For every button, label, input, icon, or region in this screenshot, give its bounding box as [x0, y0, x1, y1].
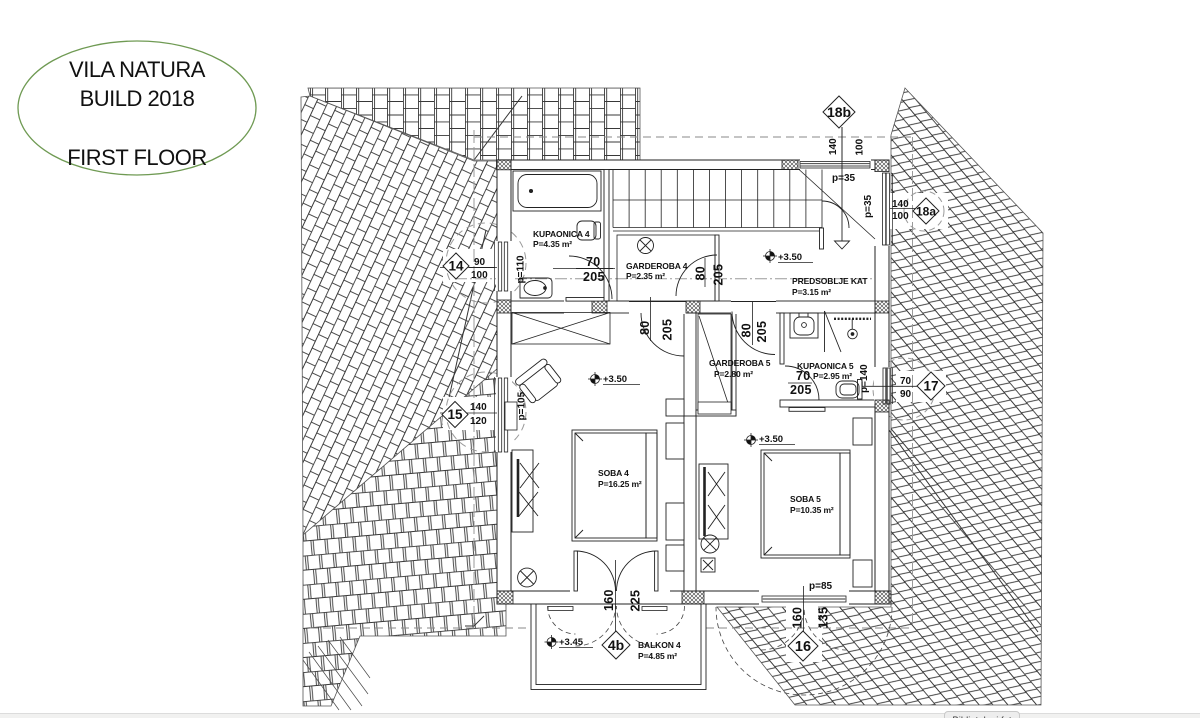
svg-text:135: 135 [817, 607, 831, 629]
svg-text:p=110: p=110 [516, 255, 527, 284]
svg-text:205: 205 [790, 383, 812, 397]
svg-text:P=2.35 m²: P=2.35 m² [626, 271, 665, 281]
svg-text:P=4.85 m²: P=4.85 m² [638, 651, 677, 661]
svg-text:P=4.35 m²: P=4.35 m² [533, 239, 572, 249]
svg-text:p=35: p=35 [832, 173, 856, 184]
svg-text:P=10.35 m²: P=10.35 m² [790, 505, 834, 515]
svg-text:140: 140 [828, 138, 839, 155]
svg-text:+3.45: +3.45 [559, 637, 584, 648]
svg-text:225: 225 [629, 590, 643, 612]
svg-text:p=105: p=105 [517, 391, 528, 420]
svg-text:80: 80 [694, 266, 708, 281]
svg-text:70: 70 [586, 255, 601, 269]
svg-text:205: 205 [661, 319, 675, 341]
svg-text:160: 160 [791, 607, 805, 629]
svg-text:90: 90 [474, 257, 486, 268]
svg-text:+3.50: +3.50 [759, 434, 783, 445]
svg-text:FIRST FLOOR: FIRST FLOOR [67, 145, 207, 170]
svg-text:16: 16 [795, 639, 811, 655]
svg-text:PREDSOBLJE KAT: PREDSOBLJE KAT [792, 276, 868, 286]
svg-text:140: 140 [470, 402, 487, 413]
svg-text:P=16.25 m²: P=16.25 m² [598, 479, 642, 489]
svg-text:17: 17 [923, 379, 938, 394]
svg-text:p=35: p=35 [863, 194, 874, 218]
svg-text:80: 80 [638, 320, 652, 335]
svg-text:18b: 18b [827, 104, 851, 120]
svg-text:205: 205 [755, 321, 769, 343]
svg-text:p=140: p=140 [859, 364, 870, 393]
svg-text:100: 100 [855, 138, 866, 155]
svg-text:205: 205 [712, 264, 726, 286]
svg-text:100: 100 [471, 270, 488, 281]
svg-text:70: 70 [796, 369, 811, 383]
svg-text:100: 100 [892, 211, 909, 222]
svg-text:90: 90 [900, 389, 912, 400]
svg-text:205: 205 [583, 270, 605, 284]
svg-text:15: 15 [447, 407, 463, 422]
svg-text:14: 14 [448, 259, 464, 274]
svg-text:BUILD 2018: BUILD 2018 [80, 86, 195, 111]
svg-text:SOBA 5: SOBA 5 [790, 494, 821, 504]
svg-text:+3.50: +3.50 [778, 252, 802, 263]
svg-text:P=2.95 m²: P=2.95 m² [813, 371, 852, 381]
svg-text:P=2.80 m²: P=2.80 m² [714, 369, 753, 379]
svg-text:120: 120 [470, 416, 487, 427]
svg-text:BALKON 4: BALKON 4 [638, 640, 681, 650]
svg-text:p=85: p=85 [809, 581, 833, 592]
svg-text:160: 160 [602, 589, 616, 611]
svg-text:+3.50: +3.50 [603, 374, 627, 385]
svg-text:18a: 18a [916, 205, 936, 219]
svg-text:140: 140 [892, 199, 909, 210]
svg-text:4b: 4b [608, 637, 624, 653]
svg-text:GARDEROBA 4: GARDEROBA 4 [626, 261, 688, 271]
svg-text:SOBA 4: SOBA 4 [598, 468, 629, 478]
svg-text:80: 80 [740, 323, 754, 338]
svg-text:VILA NATURA: VILA NATURA [69, 57, 206, 82]
svg-text:70: 70 [900, 376, 912, 387]
svg-text:KUPAONICA 4: KUPAONICA 4 [533, 229, 590, 239]
svg-text:GARDEROBA 5: GARDEROBA 5 [709, 358, 771, 368]
svg-text:P=3.15 m²: P=3.15 m² [792, 287, 831, 297]
